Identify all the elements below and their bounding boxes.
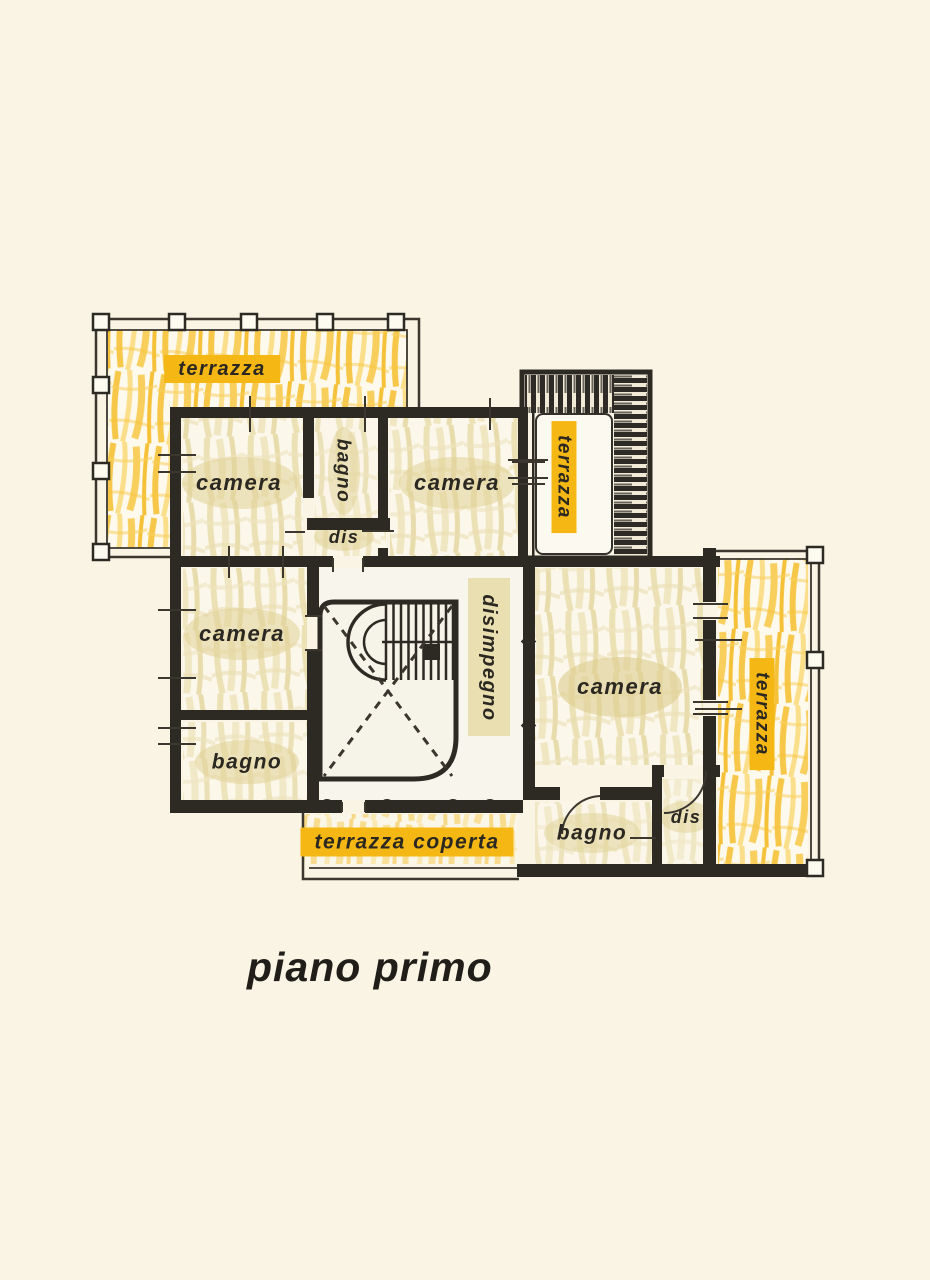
post (241, 314, 257, 330)
post (93, 463, 109, 479)
floor-plan-drawing (0, 0, 930, 1280)
post (169, 314, 185, 330)
wall-segment (703, 716, 716, 864)
post (807, 652, 823, 668)
post (807, 860, 823, 876)
wall-segment (523, 556, 535, 800)
room-label-camera-e: camera (577, 676, 663, 698)
room-label-bagno-top: bagno (334, 439, 353, 504)
column (320, 799, 334, 813)
wall-segment (170, 407, 528, 418)
column (380, 799, 394, 813)
hatched-roof-block (522, 372, 650, 558)
room-label-camera-w: camera (199, 623, 285, 645)
wall-segment (307, 650, 319, 813)
stair-newel-post (424, 644, 440, 660)
wall-segment (517, 864, 820, 877)
room-label-dis-top: dis (329, 528, 360, 546)
wall-segment (703, 548, 716, 602)
post (807, 547, 823, 563)
wall-segment (378, 418, 388, 528)
room-label-terrazza-right: terrazza (750, 658, 775, 770)
wall-segment (178, 710, 310, 720)
wall-segment (307, 556, 319, 616)
room-label-terrazza-top-left: terrazza (164, 355, 280, 383)
post (93, 544, 109, 560)
wall-segment (518, 407, 528, 567)
room-label-camera-ne: camera (414, 472, 500, 494)
column (483, 799, 497, 813)
floor-plan-page: terrazza camera bagno dis camera terrazz… (0, 0, 930, 1280)
floor-title: piano primo (247, 944, 493, 991)
door-jamb (342, 802, 365, 812)
wall-segment (378, 548, 388, 560)
room-label-bagno-w: bagno (212, 752, 283, 773)
wall-segment (303, 418, 314, 498)
room-label-bagno-s: bagno (557, 823, 628, 844)
room-label-terrazza-top-right: terrazza (552, 421, 577, 533)
wall-segment (652, 777, 662, 864)
column (446, 799, 460, 813)
room-label-camera-nw: camera (196, 472, 282, 494)
post (317, 314, 333, 330)
wall-segment (363, 556, 720, 567)
wall-segment (600, 787, 660, 800)
room-label-terrazza-coperta: terrazza coperta (300, 828, 513, 857)
wall-segment (703, 620, 716, 700)
room-label-dis-s: dis (671, 808, 702, 826)
post (93, 314, 109, 330)
staircase (320, 602, 456, 779)
post (388, 314, 404, 330)
post (93, 377, 109, 393)
room-label-disimpegno: disimpegno (479, 594, 499, 721)
wall-segment (652, 765, 664, 777)
